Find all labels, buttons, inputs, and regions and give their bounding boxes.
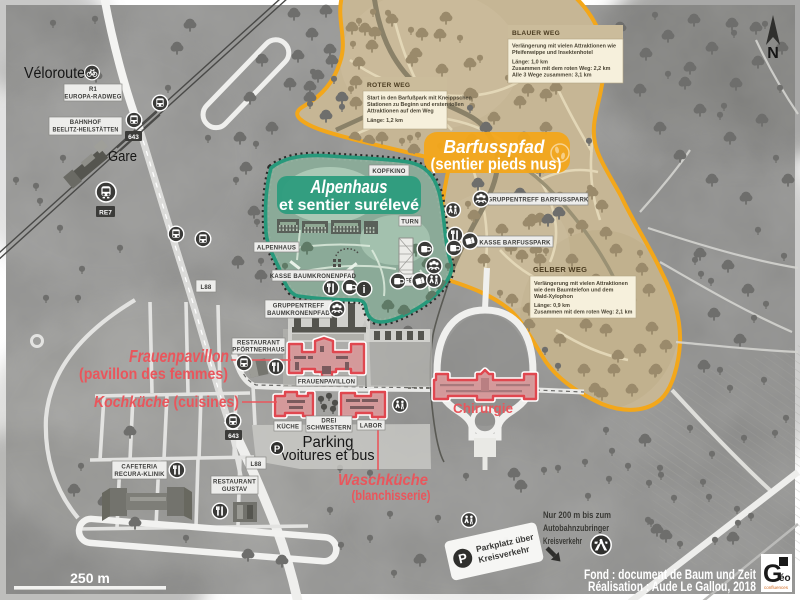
- svg-text:voitures et bus: voitures et bus: [282, 447, 375, 464]
- svg-text:Barfusspfad: Barfusspfad: [444, 136, 546, 157]
- svg-text:KASSE BARFUSSPARK: KASSE BARFUSSPARK: [479, 241, 551, 247]
- svg-text:KOPFKINO: KOPFKINO: [372, 169, 405, 175]
- svg-text:R1: R1: [89, 87, 98, 93]
- svg-text:ALPENHAUS: ALPENHAUS: [257, 246, 296, 252]
- svg-text:EUROPA-RADWEG: EUROPA-RADWEG: [64, 95, 121, 101]
- svg-text:FRAUENPAVILLON: FRAUENPAVILLON: [298, 380, 355, 386]
- svg-text:PFÖRTNERHAUS: PFÖRTNERHAUS: [232, 347, 284, 354]
- svg-text:L88: L88: [251, 462, 262, 468]
- svg-text:LABOR: LABOR: [360, 424, 383, 430]
- svg-text:wie dem Baumtelefon und dem: wie dem Baumtelefon und dem: [533, 288, 614, 294]
- svg-text:Verlängerung mit vielen Attrak: Verlängerung mit vielen Attraktionen wie: [512, 44, 616, 50]
- svg-text:SCHWESTERN: SCHWESTERN: [307, 426, 352, 432]
- svg-text:éo: éo: [779, 573, 791, 584]
- svg-text:GRUPPENTREFF: GRUPPENTREFF: [273, 304, 325, 310]
- svg-text:(sentier pieds nus): (sentier pieds nus): [431, 156, 562, 174]
- svg-text:643: 643: [228, 433, 239, 440]
- svg-text:RE7: RE7: [99, 210, 112, 217]
- svg-text:BEELITZ-HEILSTÄTTEN: BEELITZ-HEILSTÄTTEN: [53, 127, 119, 134]
- svg-text:Start in den Barfußpark mit Kn: Start in den Barfußpark mit Kneippschen: [367, 96, 472, 102]
- svg-text:Zusammen mit dem roten Weg: 2,: Zusammen mit dem roten Weg: 2,1 km: [534, 310, 633, 316]
- svg-text:ROTER WEG: ROTER WEG: [367, 82, 410, 89]
- svg-text:KASSE BAUMKRONENPFAD: KASSE BAUMKRONENPFAD: [270, 274, 357, 280]
- svg-text:BAHNHOF: BAHNHOF: [70, 120, 102, 126]
- svg-text:RESTAURANT: RESTAURANT: [237, 341, 280, 347]
- svg-text:RECURA-KLINIK: RECURA-KLINIK: [114, 472, 165, 478]
- svg-text:et sentier surélevé: et sentier surélevé: [279, 197, 419, 214]
- svg-text:BLAUER WEG: BLAUER WEG: [512, 30, 560, 37]
- svg-text:GRUPPENTREFF BARFUSSPARK: GRUPPENTREFF BARFUSSPARK: [487, 198, 588, 204]
- svg-text:Verlängerung mit vielen Attrak: Verlängerung mit vielen Attraktionen: [534, 281, 628, 287]
- svg-text:Wald-Xylophon: Wald-Xylophon: [534, 294, 573, 300]
- svg-text:Alpenhaus: Alpenhaus: [310, 177, 388, 197]
- svg-text:Pfeifenwippe und Insektenhotel: Pfeifenwippe und Insektenhotel: [512, 50, 593, 56]
- svg-text:Alle 3 Wege zusammen: 3,1 km: Alle 3 Wege zusammen: 3,1 km: [512, 73, 592, 79]
- svg-text:Länge: 0,9 km: Länge: 0,9 km: [534, 303, 570, 309]
- svg-text:Gare: Gare: [108, 148, 137, 165]
- svg-text:CAFETERIA: CAFETERIA: [121, 465, 158, 471]
- svg-text:Réalisation : Aude Le Gallou,: Réalisation : Aude Le Gallou, 2018: [588, 579, 756, 594]
- svg-text:Nur 200 m bis zum: Nur 200 m bis zum: [543, 510, 611, 520]
- svg-text:RESTAURANT: RESTAURANT: [213, 480, 256, 486]
- svg-text:Länge: 1,0 km: Länge: 1,0 km: [512, 60, 548, 66]
- svg-text:Attraktionen auf dem Weg: Attraktionen auf dem Weg: [367, 109, 434, 115]
- svg-text:DREI: DREI: [321, 419, 336, 425]
- svg-text:Stationen zu Beginn und ersten: Stationen zu Beginn und ersten tollen: [367, 102, 464, 108]
- svg-text:Zusammen mit dem roten Weg: 2,: Zusammen mit dem roten Weg: 2,2 km: [512, 66, 611, 72]
- svg-text:Länge: 1,2 km: Länge: 1,2 km: [367, 118, 403, 124]
- svg-text:Véloroute: Véloroute: [24, 65, 85, 82]
- svg-text:N: N: [767, 45, 779, 62]
- svg-text:250 m: 250 m: [70, 570, 110, 586]
- svg-text:(pavillon des femmes): (pavillon des femmes): [79, 366, 228, 383]
- svg-text:TURN: TURN: [401, 220, 418, 226]
- svg-text:GELBER WEG: GELBER WEG: [533, 265, 587, 274]
- svg-text:Kochküche (cuisines): Kochküche (cuisines): [94, 394, 239, 411]
- svg-text:Kreisverkehr: Kreisverkehr: [543, 536, 582, 546]
- svg-text:643: 643: [128, 134, 139, 141]
- svg-text:GUSTAV: GUSTAV: [222, 487, 247, 493]
- svg-text:confluences: confluences: [764, 585, 789, 590]
- svg-text:Frauenpavillon: Frauenpavillon: [129, 346, 229, 366]
- svg-text:Waschküche: Waschküche: [338, 472, 428, 489]
- svg-text:Chirurgie: Chirurgie: [453, 401, 513, 416]
- svg-text:BAUMKRONENPFAD: BAUMKRONENPFAD: [267, 311, 330, 317]
- svg-text:(blanchisserie): (blanchisserie): [352, 488, 431, 503]
- svg-text:KÜCHE: KÜCHE: [277, 424, 299, 431]
- svg-text:Autobahnzubringer: Autobahnzubringer: [543, 523, 609, 533]
- svg-text:L88: L88: [201, 285, 212, 291]
